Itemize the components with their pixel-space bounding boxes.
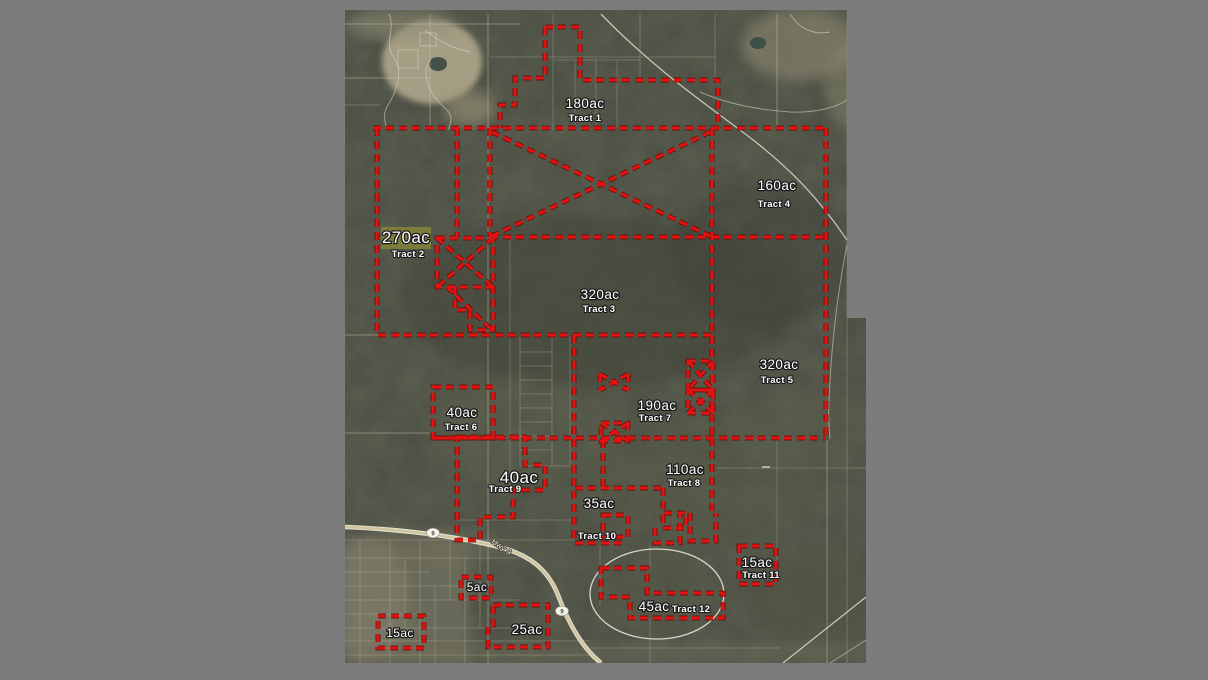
tract-4-name-label: Tract 4 — [758, 199, 791, 210]
tract-6-name-label: Tract 6 — [445, 422, 478, 433]
parcel-15ac-label: 15ac — [386, 626, 414, 640]
tract-8-acreage-label: 110ac — [666, 462, 704, 477]
tract-5-acreage-label: 320ac — [760, 357, 799, 372]
aerial-photo: 9 9 Hwy 9 180ac Tract 1 270ac Tract 2 32… — [328, 9, 882, 663]
tract-9-name-label: Tract 9 — [489, 484, 522, 495]
tract-7-name-label: Tract 7 — [639, 413, 672, 424]
tract-7-acreage-label: 190ac — [638, 398, 677, 413]
tract-2-acreage-label: 270ac — [382, 228, 430, 247]
tract-3-name-label: Tract 3 — [583, 304, 616, 315]
tract-8-name-label: Tract 8 — [668, 478, 701, 489]
tract-12-name-label: Tract 12 — [672, 604, 710, 615]
tract-1-acreage-label: 180ac — [566, 96, 605, 111]
aerial-tract-map: 9 9 Hwy 9 180ac Tract 1 270ac Tract 2 32… — [0, 0, 1208, 680]
tract-1-name-label: Tract 1 — [569, 113, 602, 124]
tract-11-acreage-label: 15ac — [742, 555, 773, 570]
tract-6-acreage-label: 40ac — [447, 405, 478, 420]
parcel-5ac-label: 5ac — [467, 580, 488, 594]
tract-10-acreage-label: 35ac — [584, 496, 615, 511]
tract-4-acreage-label: 160ac — [758, 178, 797, 193]
tract-3-acreage-label: 320ac — [581, 287, 620, 302]
tract-12-acreage-label: 45ac — [639, 599, 670, 614]
tract-11-name-label: Tract 11 — [742, 570, 780, 581]
parcel-25ac-label: 25ac — [512, 622, 543, 637]
tract-2-name-label: Tract 2 — [392, 249, 425, 260]
tract-10-name-label: Tract 10 — [578, 531, 616, 542]
tract-5-name-label: Tract 5 — [761, 375, 794, 386]
tract-map-page: 9 9 Hwy 9 180ac Tract 1 270ac Tract 2 32… — [0, 0, 1208, 680]
